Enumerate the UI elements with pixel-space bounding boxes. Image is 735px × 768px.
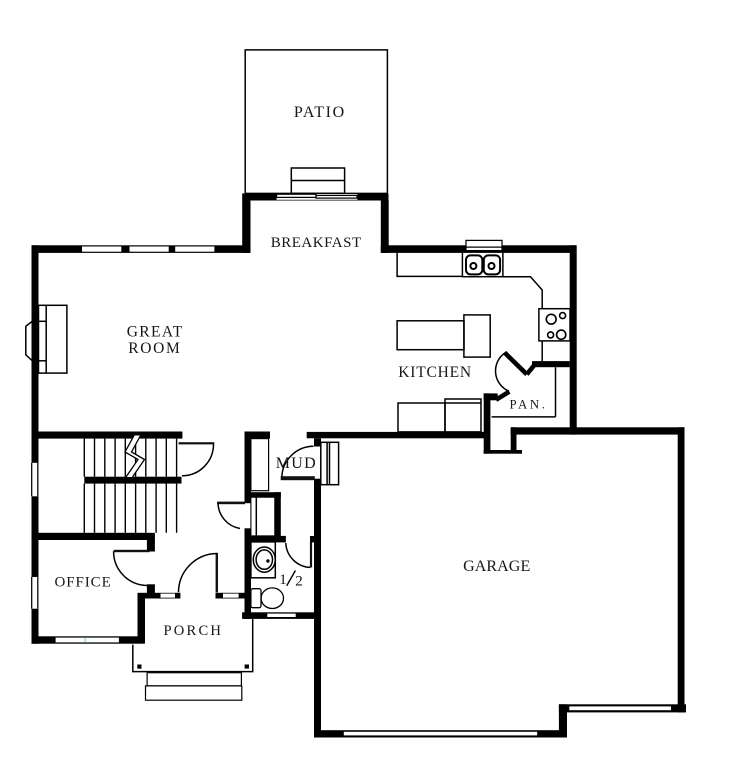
svg-text:PATIO: PATIO <box>294 104 346 121</box>
svg-text:KITCHEN: KITCHEN <box>398 364 472 381</box>
svg-text:1: 1 <box>279 572 287 588</box>
svg-text:2: 2 <box>295 574 303 590</box>
svg-text:OFFICE: OFFICE <box>55 574 112 590</box>
svg-text:GARAGE: GARAGE <box>463 558 530 575</box>
svg-text:PAN.: PAN. <box>509 397 547 411</box>
svg-text:MUD: MUD <box>276 455 317 472</box>
svg-text:GREAT: GREAT <box>127 323 184 340</box>
svg-text:PORCH: PORCH <box>163 623 223 639</box>
svg-text:BREAKFAST: BREAKFAST <box>271 235 362 251</box>
svg-text:ROOM: ROOM <box>128 340 181 357</box>
